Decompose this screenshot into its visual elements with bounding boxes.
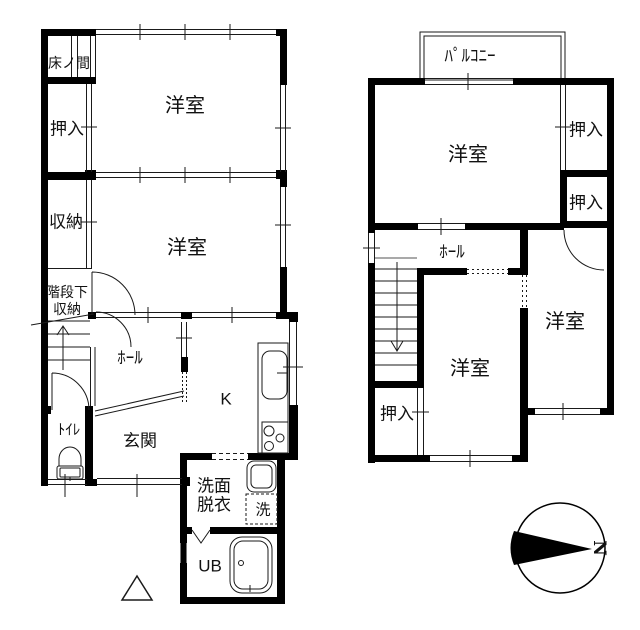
room-label-closet-east-1: 押入 <box>569 121 603 140</box>
compass-north-label: N <box>589 540 609 556</box>
room-label-washroom-1: 洗面 <box>197 477 231 496</box>
room-label-bath: UB <box>198 557 222 576</box>
toilet-icon <box>57 447 83 481</box>
room-label-laundry: 洗 <box>255 502 270 519</box>
floor2-stairs <box>375 262 417 365</box>
floorplan-svg: 床ノ間 押入 洋室 収納 洋室 階段下 収納 ﾎｰﾙ ﾄｲﾚ 玄関 K 洗面 脱… <box>0 0 640 630</box>
kitchen-counter-icon <box>258 343 288 453</box>
floor2-labels: ﾊﾟﾙｺﾆｰ 洋室 押入 押入 ﾎｰﾙ 洋室 洋室 押入 <box>380 47 603 424</box>
room-label-kitchen: K <box>220 390 232 409</box>
room-label-balcony: ﾊﾟﾙｺﾆｰ <box>445 47 496 66</box>
floorplan-page: 床ノ間 押入 洋室 収納 洋室 階段下 収納 ﾎｰﾙ ﾄｲﾚ 玄関 K 洗面 脱… <box>0 0 640 630</box>
floor2-doors <box>564 230 604 270</box>
room-label-hall-f2: ﾎｰﾙ <box>439 243 465 262</box>
room-label-entrance: 玄関 <box>123 432 157 451</box>
floor1-stairs <box>48 321 90 370</box>
room-label-understair-2: 収納 <box>53 301 81 317</box>
room-label-washroom-2: 脱衣 <box>197 496 231 515</box>
room-label-western-room-north: 洋室 <box>165 94 205 117</box>
room-label-understair-1: 階段下 <box>46 284 88 300</box>
room-label-hall-f1: ﾎｰﾙ <box>117 349 143 368</box>
room-label-closet-north: 押入 <box>50 120 84 139</box>
room-label-western-room-east-f2: 洋室 <box>545 310 585 333</box>
room-label-closet-east-2: 押入 <box>569 194 603 213</box>
compass-icon: N <box>511 503 610 593</box>
room-label-western-room-center-f2: 洋室 <box>450 357 490 380</box>
porch-triangle-icon <box>122 576 152 600</box>
washbasin-icon <box>247 461 276 492</box>
bathtub-icon <box>230 537 272 593</box>
room-label-western-room-center: 洋室 <box>167 236 207 259</box>
room-label-closet-sw-f2: 押入 <box>380 405 414 424</box>
room-label-western-room-north-f2: 洋室 <box>448 143 488 166</box>
floor1-labels: 床ノ間 押入 洋室 収納 洋室 階段下 収納 ﾎｰﾙ ﾄｲﾚ 玄関 K 洗面 脱… <box>46 55 271 576</box>
room-label-tokonoma: 床ノ間 <box>48 55 90 71</box>
room-label-storage: 収納 <box>49 213 83 232</box>
room-label-toilet: ﾄｲﾚ <box>58 422 81 439</box>
